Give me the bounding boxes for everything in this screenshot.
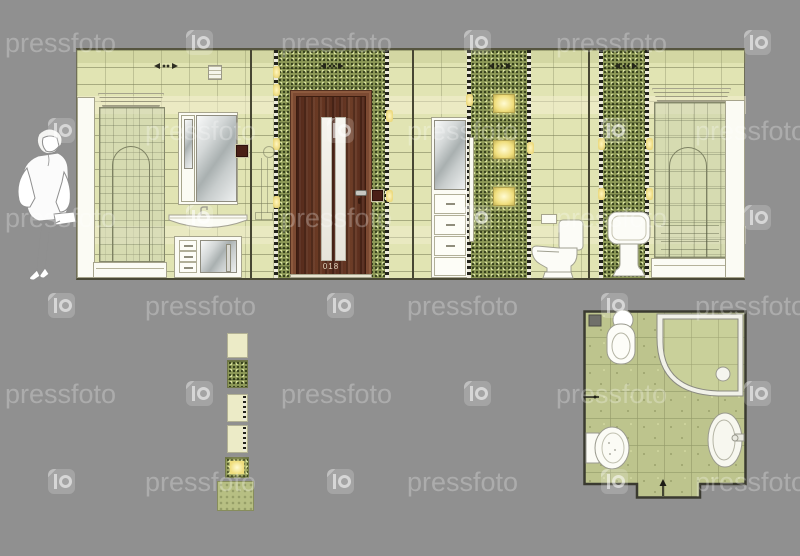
pressfoto-logo-icon <box>744 381 771 406</box>
legend-floor-tile <box>217 481 254 511</box>
floor-plan-drawing <box>583 310 747 500</box>
vanity-mirror <box>196 115 237 202</box>
tile-legend-strip <box>216 331 256 511</box>
edge-glow <box>273 196 280 208</box>
section-marker-icon <box>154 62 178 70</box>
section-marker-icon <box>614 62 638 70</box>
door-keyhole <box>358 198 361 204</box>
towel-rail <box>469 137 474 242</box>
plan-toilet-bowl <box>607 324 635 364</box>
door-model-label: 018 <box>297 262 365 271</box>
drawer-handle <box>184 256 193 258</box>
section-marker-icon <box>320 62 344 70</box>
shower-tray-step-line <box>654 265 727 266</box>
watermark-text: pressfoto <box>5 381 116 407</box>
scale-figure-sketch <box>8 126 82 286</box>
mosaic-border-strip <box>385 50 389 278</box>
shower-fixture-sketch <box>263 146 275 158</box>
edge-glow <box>466 94 473 106</box>
edge-glow <box>273 66 280 78</box>
floor-drain <box>589 315 601 326</box>
legend-border-tile <box>227 394 248 422</box>
edge-glow <box>386 110 393 122</box>
shower-tray <box>651 258 730 278</box>
door-handle <box>355 190 367 196</box>
wall-switch <box>236 145 248 157</box>
watermark-text: pressfoto <box>407 293 518 319</box>
door-threshold <box>290 274 372 278</box>
unit-drawer <box>434 194 466 214</box>
edge-glow <box>527 142 534 154</box>
legend-mosaic-tile <box>227 360 248 388</box>
shower-fixture-sketch <box>267 158 268 213</box>
vanity-drawer <box>179 251 197 262</box>
shower-tray <box>93 262 167 278</box>
drawer-handle <box>184 267 193 269</box>
wall-switch <box>372 190 383 201</box>
drawer-handle <box>446 203 455 205</box>
washbasin-front <box>168 214 248 236</box>
stage: 018 <box>0 0 800 556</box>
backlit-niche <box>493 187 515 206</box>
wall-corner-line <box>412 50 414 278</box>
shower-cornice <box>98 93 164 107</box>
vanity-cabinet-door <box>200 240 237 273</box>
wall-pilaster <box>725 100 745 278</box>
pedestal-basin-front <box>607 210 651 278</box>
drawer-handle <box>446 245 455 247</box>
drawer-handle <box>184 245 193 247</box>
vanity-drawer <box>179 240 197 251</box>
pressfoto-logo-icon <box>464 381 491 406</box>
watermark-text: pressfoto <box>407 469 518 495</box>
edge-glow <box>598 138 605 150</box>
mirror-cabinet <box>178 112 238 205</box>
mosaic-band-backlit <box>471 50 527 278</box>
wall-elevation-drawing: 018 <box>76 48 745 280</box>
legend-backlit-tile <box>225 457 249 478</box>
watermark-text: pressfoto <box>281 381 392 407</box>
cabinet-door-handle <box>226 244 231 272</box>
edge-glow <box>273 84 280 96</box>
mirror-cabinet-side-door <box>181 115 195 202</box>
edge-glow <box>646 138 653 150</box>
wall-corner-line <box>250 50 252 278</box>
shower-glass-enclosure <box>99 107 165 262</box>
legend-plain-tile <box>227 333 248 358</box>
door-slab: 018 <box>296 96 366 277</box>
drawer-handle <box>446 224 455 226</box>
vent-grille <box>208 65 222 80</box>
plan-shower-drain <box>716 367 730 381</box>
toilet-side-view <box>529 218 587 280</box>
pressfoto-logo-icon <box>186 381 213 406</box>
shower-tray-step-line <box>96 268 164 269</box>
backlit-center <box>230 461 244 474</box>
shower-door-arch <box>112 146 150 263</box>
wall-corner-line <box>588 50 590 278</box>
pressfoto-logo-icon <box>48 469 75 494</box>
edge-glow <box>386 190 393 202</box>
small-mirror <box>184 119 193 169</box>
faucet-sketch <box>255 212 273 220</box>
floor-plan <box>583 310 747 500</box>
backlit-niche <box>493 94 515 113</box>
unit-drawer <box>434 236 466 256</box>
shower-cornice <box>652 88 731 102</box>
backlit-niche <box>493 140 515 159</box>
door-glass-strip <box>335 117 346 261</box>
pressfoto-logo-icon <box>744 205 771 230</box>
section-marker-icon <box>488 62 512 70</box>
entrance-door: 018 <box>290 90 372 278</box>
door-glass-strip <box>321 117 332 261</box>
edge-glow <box>646 188 653 200</box>
pressfoto-logo-icon <box>327 469 354 494</box>
person-sketch-icon <box>8 126 82 286</box>
legend-border-tile <box>227 425 248 453</box>
vanity-cabinet <box>174 236 242 278</box>
edge-glow <box>598 188 605 200</box>
unit-base-panel <box>434 257 466 276</box>
tall-storage-unit <box>431 117 469 278</box>
unit-drawer <box>434 215 466 235</box>
shower-fixture-sketch <box>261 158 262 220</box>
pressfoto-logo-icon <box>327 293 354 318</box>
pressfoto-logo-icon <box>48 293 75 318</box>
unit-mirror <box>434 120 466 190</box>
shower-glass-enclosure <box>654 102 727 258</box>
vanity-drawer <box>179 262 197 273</box>
shower-shelf-lines <box>661 225 719 255</box>
pressfoto-logo-icon <box>744 30 771 55</box>
watermark-text: pressfoto <box>145 293 256 319</box>
